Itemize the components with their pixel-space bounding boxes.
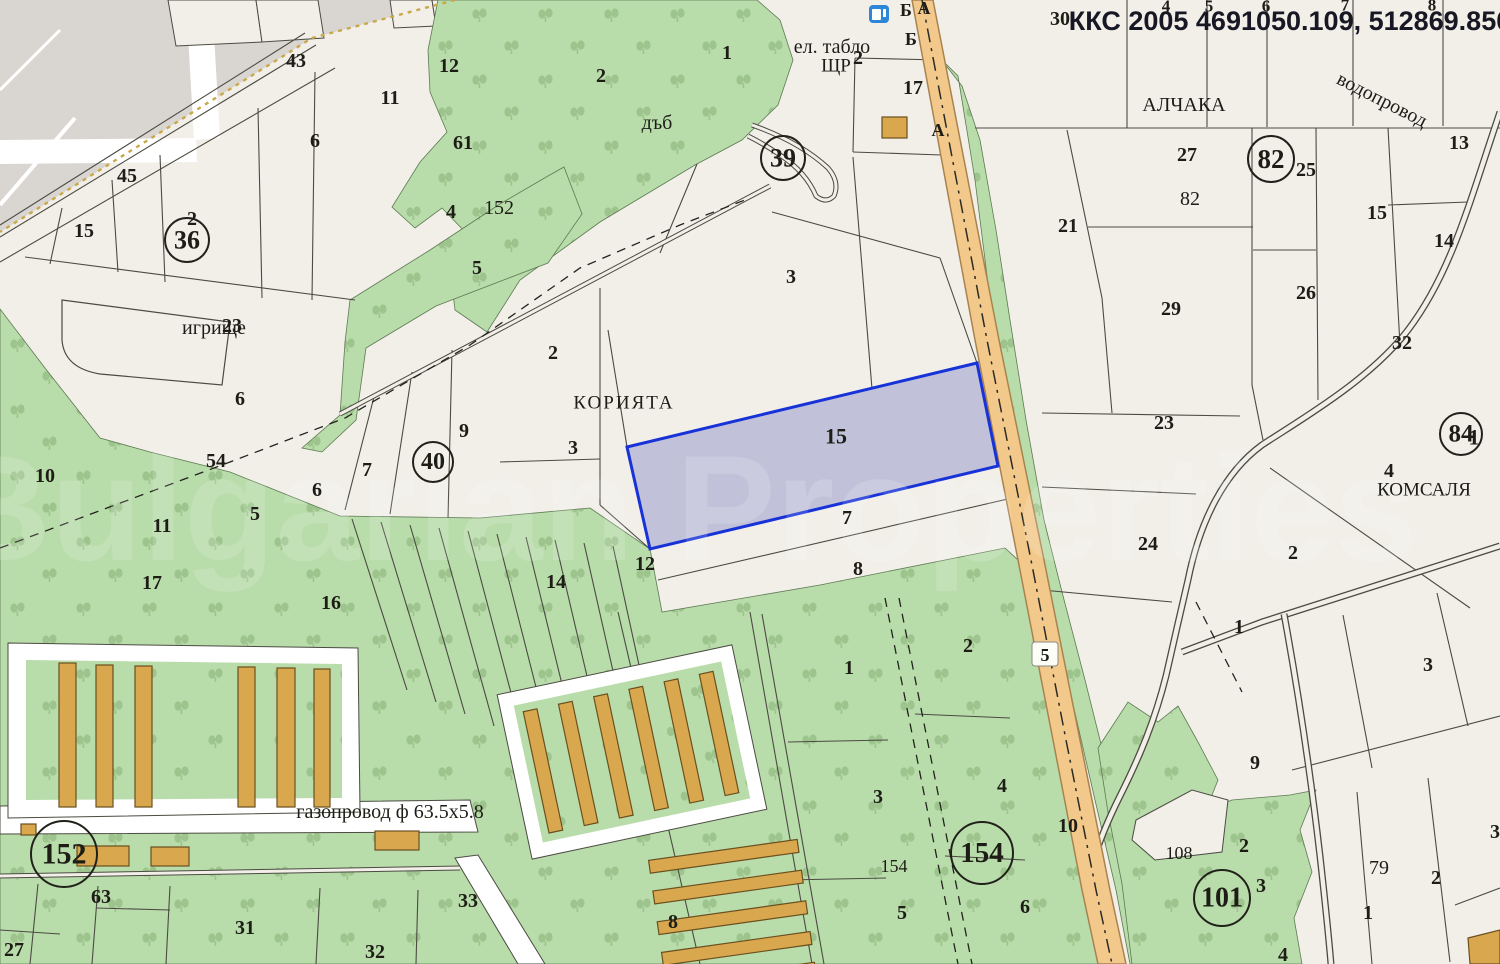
map-label: 4 [446, 201, 456, 223]
map-label: А [918, 0, 931, 18]
map-label: Б [900, 0, 912, 20]
map-label: ЩР [821, 56, 851, 77]
map-label: 79 [1369, 857, 1389, 879]
map-label: 6 [235, 388, 245, 410]
map-label: 14 [546, 571, 566, 593]
map-label: 14 [1434, 230, 1454, 252]
map-label: 24 [1138, 533, 1158, 555]
map-label: 31 [235, 917, 255, 939]
map-label: 32 [1392, 332, 1412, 354]
map-canvas[interactable]: Bulgarian Properties 5 43121166145152415… [0, 0, 1500, 964]
map-label: 10 [35, 465, 55, 487]
map-label: 10 [1058, 815, 1078, 837]
map-label: 11 [381, 87, 400, 109]
map-label: 4 [1278, 944, 1288, 964]
map-label: 27 [4, 939, 24, 961]
map-label: 16 [321, 592, 341, 614]
map-label: 15 [825, 424, 847, 449]
map-label: 27 [1177, 144, 1197, 166]
map-label: 2 [1288, 542, 1298, 564]
svg-text:154: 154 [960, 837, 1004, 869]
map-label: 108 [1166, 843, 1193, 863]
map-label: Б [905, 29, 917, 49]
map-label: 2 [853, 47, 863, 69]
map-label: 2 [1239, 835, 1249, 857]
map-label: 3 [1423, 654, 1433, 676]
map-label: 1 [1363, 902, 1373, 924]
map-label: 54 [206, 450, 226, 472]
svg-text:84: 84 [1449, 421, 1475, 448]
map-label: 30 [1050, 8, 1070, 30]
svg-text:82: 82 [1258, 144, 1285, 174]
map-label: 7 [842, 507, 852, 529]
map-label: 6 [312, 479, 322, 501]
map-label: 32 [365, 941, 385, 963]
map-label: 15 [74, 220, 94, 242]
map-label: КОМСАЛЯ [1377, 480, 1471, 501]
map-label: 63 [91, 886, 111, 908]
map-label: 29 [1161, 298, 1181, 320]
map-label: 23 [1154, 412, 1174, 434]
map-label: газопровод ф 63.5х5.8 [296, 801, 483, 823]
map-label: 5 [897, 902, 907, 924]
map-label: 6 [1020, 896, 1030, 918]
gas-station-icon [869, 5, 889, 23]
map-label: 3 [873, 786, 883, 808]
map-label: 26 [1296, 282, 1316, 304]
cadastral-map[interactable]: Bulgarian Properties 5 43121166145152415… [0, 0, 1500, 964]
coordinate-readout: ККС 2005 4691050.109, 512869.850 [1069, 6, 1500, 36]
map-label: 9 [459, 420, 469, 442]
map-label: 3 [568, 437, 578, 459]
map-label: 8 [668, 911, 678, 933]
map-label: дъб [642, 112, 673, 134]
map-label: 1 [844, 657, 854, 679]
map-label: 2 [963, 635, 973, 657]
svg-text:40: 40 [421, 449, 445, 475]
map-label: 25 [1296, 159, 1316, 181]
map-label: АЛЧАКА [1142, 94, 1226, 116]
map-label: 11 [153, 515, 172, 537]
map-label: 5 [472, 257, 482, 279]
map-label: 17 [903, 77, 923, 99]
map-label: 13 [1449, 132, 1469, 154]
road-number-badge: 5 [1032, 642, 1058, 666]
map-label: 2 [596, 65, 606, 87]
map-label: 33 [458, 890, 478, 912]
map-label: 17 [142, 572, 162, 594]
map-label: 2 [548, 342, 558, 364]
map-label: 1 [1234, 616, 1244, 638]
map-label: КОРИЯТА [573, 393, 674, 414]
map-label: 1 [722, 42, 732, 64]
map-label: 3 [1256, 875, 1266, 897]
svg-text:39: 39 [770, 144, 796, 173]
map-label: 12 [635, 553, 655, 575]
svg-text:5: 5 [1041, 645, 1050, 665]
map-label: 82 [1180, 188, 1200, 210]
svg-text:152: 152 [42, 838, 87, 871]
map-label: 15 [1367, 202, 1387, 224]
map-label: А [932, 120, 945, 140]
map-label: 152 [484, 197, 514, 219]
map-label: 8 [853, 558, 863, 580]
svg-text:36: 36 [174, 226, 200, 255]
map-label: 61 [453, 132, 473, 154]
map-label: 23 [222, 315, 242, 337]
map-label: 4 [997, 775, 1007, 797]
map-label: 154 [881, 856, 908, 876]
map-label: 5 [250, 503, 260, 525]
map-label: 45 [117, 165, 137, 187]
map-label: 43 [286, 50, 306, 72]
map-label: 6 [310, 130, 320, 152]
map-label: 21 [1058, 215, 1078, 237]
map-label: 3 [786, 266, 796, 288]
svg-text:101: 101 [1201, 883, 1243, 914]
map-label: 12 [439, 55, 459, 77]
map-label: 9 [1250, 752, 1260, 774]
map-label: 3 [1490, 821, 1500, 843]
map-label: 7 [362, 459, 372, 481]
map-label: 2 [1431, 867, 1441, 889]
